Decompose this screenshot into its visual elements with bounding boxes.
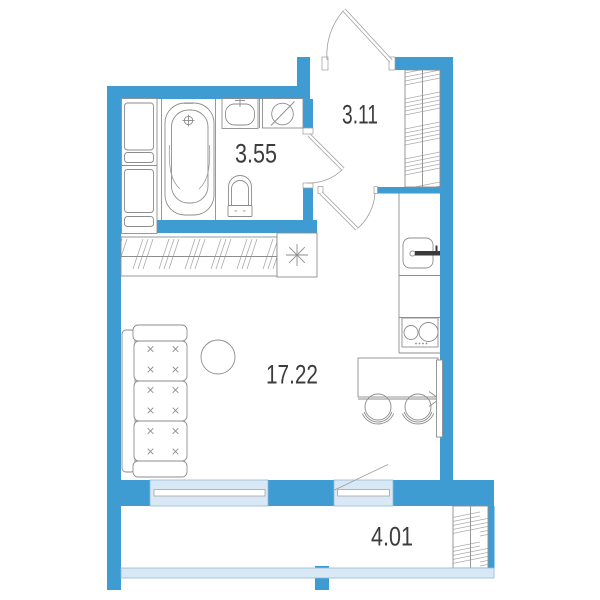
wall-hall-room-divider [377,187,440,194]
counter-unit [121,233,317,277]
hall-closet [405,70,440,187]
wall-left [107,86,121,590]
wall-bottom-b [268,480,334,506]
toilet-icon [228,176,252,217]
wall-bottom-a [121,480,150,506]
vent-symbol [277,233,317,277]
living-room-area-label: 17.22 [266,360,318,390]
wardrobe [122,99,158,234]
dining-table [358,358,438,397]
cooktop-icon [402,318,438,347]
wall-step [297,57,310,99]
balcony-area-label: 4.01 [371,522,413,552]
wall-bath-hall-lower [303,188,313,221]
bathroom-area-label: 3.55 [235,139,277,169]
balcony-hatch [453,506,488,568]
radiator [437,360,443,437]
balcony-glazing [121,568,494,578]
floor-plan-page: 3.55 3.11 [0,0,600,600]
bathtub-icon [165,103,214,215]
wall-balcony-right [488,506,495,568]
wall-bathroom-top [107,86,310,99]
sofa [122,325,187,477]
hallway-area-label: 3.11 [342,100,378,130]
floor-plan-svg: 3.55 3.11 [0,0,600,600]
wall-bath-hall-upper [303,99,313,128]
wall-bottom-c [393,480,494,506]
window [150,480,268,506]
